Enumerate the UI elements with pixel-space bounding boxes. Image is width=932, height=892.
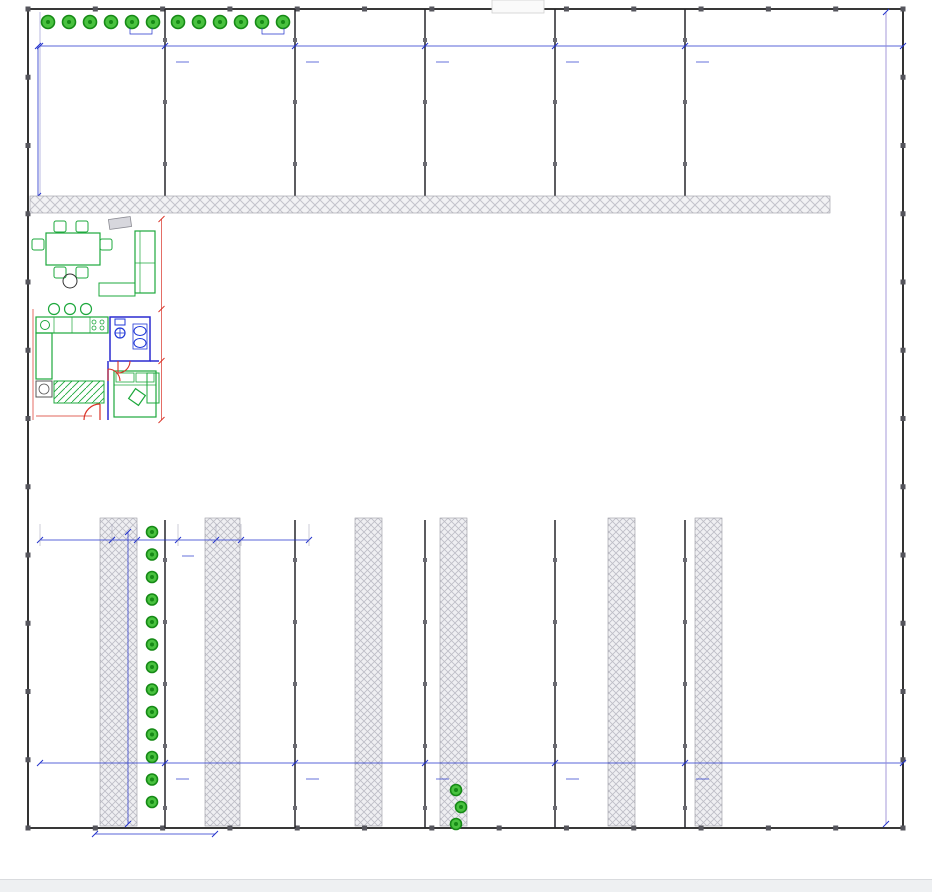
tree bbox=[147, 527, 158, 538]
tree bbox=[147, 707, 158, 718]
tree bbox=[172, 16, 185, 29]
tree bbox=[147, 774, 158, 785]
tree bbox=[147, 684, 158, 695]
unit-floorplan-1 bbox=[32, 216, 165, 423]
tree bbox=[147, 594, 158, 605]
tree bbox=[147, 729, 158, 740]
tree bbox=[451, 819, 462, 830]
walkway bbox=[440, 518, 467, 826]
ac-unit-icon bbox=[108, 217, 131, 230]
tree bbox=[147, 797, 158, 808]
tree bbox=[147, 639, 158, 650]
tree bbox=[105, 16, 118, 29]
walkway bbox=[355, 518, 382, 826]
tree bbox=[147, 549, 158, 560]
tree bbox=[147, 752, 158, 763]
unit-number-badge bbox=[63, 274, 77, 288]
site-plan-canvas bbox=[0, 0, 932, 892]
tree bbox=[42, 16, 55, 29]
units bbox=[32, 216, 165, 423]
tree bbox=[147, 662, 158, 673]
tree bbox=[235, 16, 248, 29]
tree bbox=[63, 16, 76, 29]
tree bbox=[456, 802, 467, 813]
tree bbox=[277, 16, 290, 29]
floor-plan-drawing bbox=[0, 0, 932, 892]
tree bbox=[147, 16, 160, 29]
bottom-bar bbox=[0, 879, 932, 892]
tree bbox=[147, 572, 158, 583]
tree bbox=[451, 785, 462, 796]
tree bbox=[193, 16, 206, 29]
walkway bbox=[100, 518, 137, 826]
walkway bbox=[205, 518, 240, 826]
unit-labels bbox=[63, 274, 77, 288]
tree bbox=[256, 16, 269, 29]
tree bbox=[84, 16, 97, 29]
tree bbox=[126, 16, 139, 29]
building bbox=[30, 196, 830, 423]
walkway bbox=[608, 518, 635, 826]
walkway bbox=[695, 518, 722, 826]
tree bbox=[214, 16, 227, 29]
landscaping-ground bbox=[100, 518, 722, 826]
tree bbox=[147, 617, 158, 628]
